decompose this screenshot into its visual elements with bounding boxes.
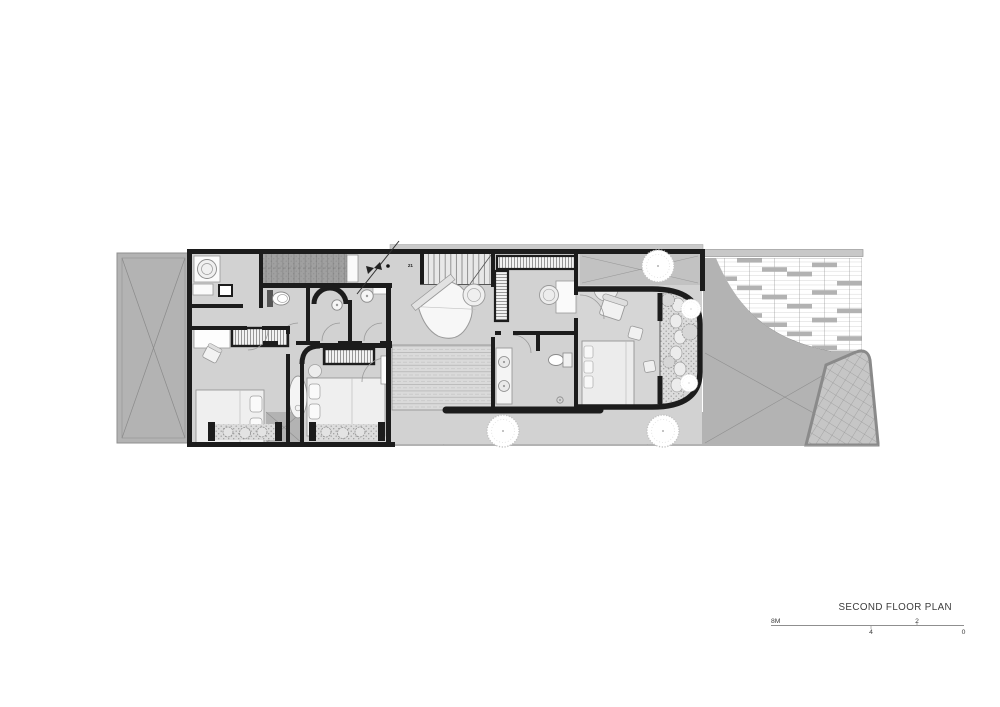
- sink-box: [219, 285, 232, 296]
- scale-label-8m: 8M: [771, 618, 781, 625]
- piano-stool-icon: [463, 284, 485, 306]
- bathtub-icon: [289, 376, 307, 418]
- tree-icon: [487, 415, 519, 447]
- shrub-icon: [681, 299, 701, 319]
- garage-roof-void: [117, 253, 190, 443]
- louver-bridge-deck: [392, 345, 493, 410]
- plant-icon: [663, 356, 675, 368]
- drawing-title: SECOND FLOOR PLAN: [839, 602, 953, 613]
- pouf-icon: [309, 365, 322, 378]
- scale-label-2: 2: [915, 618, 919, 625]
- drawing-sheet: 21 SECOND FLOOR PLAN 8M 4 2 0: [0, 0, 1000, 707]
- upper-right-terrace: [580, 254, 700, 285]
- stair-main: [263, 253, 358, 283]
- roof-edge-strip: [700, 250, 863, 257]
- wardrobe-icon: [324, 349, 374, 364]
- stair-upper: [420, 253, 492, 285]
- wardrobe-icon: [497, 256, 575, 269]
- toilet-icon: [273, 292, 290, 305]
- scale-label-0: 0: [962, 629, 966, 636]
- wardrobe-icon: [232, 328, 288, 346]
- floor-plan-drawing: 21 SECOND FLOOR PLAN 8M 4 2 0: [0, 0, 1000, 707]
- scale-label-4: 4: [869, 629, 873, 636]
- side-table-icon: [643, 360, 656, 373]
- scale-bar: 8M 4 2 0: [771, 618, 966, 636]
- title-block: SECOND FLOOR PLAN: [839, 602, 953, 613]
- tree-icon: [642, 250, 674, 282]
- shrub-icon: [680, 374, 698, 392]
- tree-icon: [647, 415, 679, 447]
- plant-icon: [682, 324, 698, 340]
- door-leaf: [347, 255, 358, 282]
- stool-icon: [540, 286, 559, 305]
- wardrobe-icon: [495, 271, 508, 321]
- toilet-icon: [549, 355, 564, 366]
- plant-icon: [662, 294, 675, 307]
- stair-count-label: 21: [408, 263, 414, 268]
- washing-machine-icon: [198, 260, 217, 279]
